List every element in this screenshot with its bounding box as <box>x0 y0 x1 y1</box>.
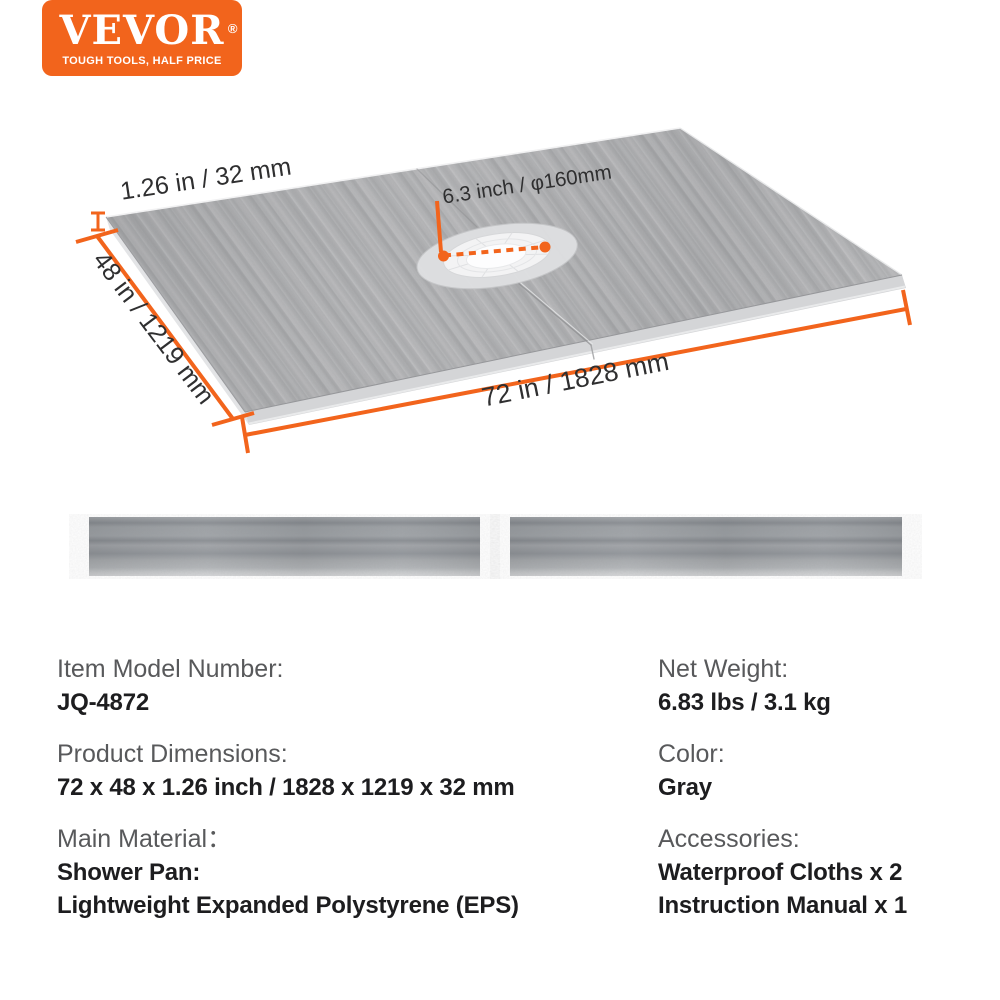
spec-value: Lightweight Expanded Polystyrene (EPS) <box>57 889 658 922</box>
shower-pan-hero-image: 1.26 in / 32 mm 6.3 inch / φ160mm 48 in … <box>0 0 1000 600</box>
registered-trademark-icon: ® <box>228 9 239 49</box>
vevor-logo-wordmark: VEVOR® <box>60 11 225 51</box>
spec-accessories: Accessories: Waterproof Cloths x 2 Instr… <box>658 822 957 922</box>
spec-color: Color: Gray <box>658 737 957 805</box>
spec-value: Shower Pan: <box>57 856 658 889</box>
spec-label: Color: <box>658 737 957 771</box>
spec-label: Net Weight: <box>658 652 957 686</box>
spec-value: 6.83 lbs / 3.1 kg <box>658 686 957 719</box>
spec-item-model-number: Item Model Number: JQ-4872 <box>57 652 658 720</box>
vevor-logo-text: VEVOR <box>60 7 225 54</box>
spec-label: Main Material： <box>57 822 658 856</box>
board-edge-strip-2 <box>510 517 902 576</box>
spec-value: 72 x 48 x 1.26 inch / 1828 x 1219 x 32 m… <box>57 771 658 804</box>
spec-main-material: Main Material： Shower Pan: Lightweight E… <box>57 822 658 922</box>
board-edge-strip-1 <box>89 517 480 576</box>
spec-value: Instruction Manual x 1 <box>658 889 957 922</box>
spec-label: Accessories: <box>658 822 957 856</box>
spec-net-weight: Net Weight: 6.83 lbs / 3.1 kg <box>658 652 957 720</box>
vevor-logo: VEVOR® TOUGH TOOLS, HALF PRICE <box>42 0 242 76</box>
thickness-marker <box>91 213 105 230</box>
product-infographic: VEVOR® TOUGH TOOLS, HALF PRICE <box>0 0 1000 1000</box>
spec-label: Product Dimensions: <box>57 737 658 771</box>
product-spec-section: Item Model Number: JQ-4872 Net Weight: 6… <box>57 652 957 922</box>
vevor-logo-tagline: TOUGH TOOLS, HALF PRICE <box>62 55 221 67</box>
spec-value: Gray <box>658 771 957 804</box>
spec-product-dimensions: Product Dimensions: 72 x 48 x 1.26 inch … <box>57 737 658 805</box>
spec-value: Waterproof Cloths x 2 <box>658 856 957 889</box>
spec-value: JQ-4872 <box>57 686 658 719</box>
spec-label: Item Model Number: <box>57 652 658 686</box>
